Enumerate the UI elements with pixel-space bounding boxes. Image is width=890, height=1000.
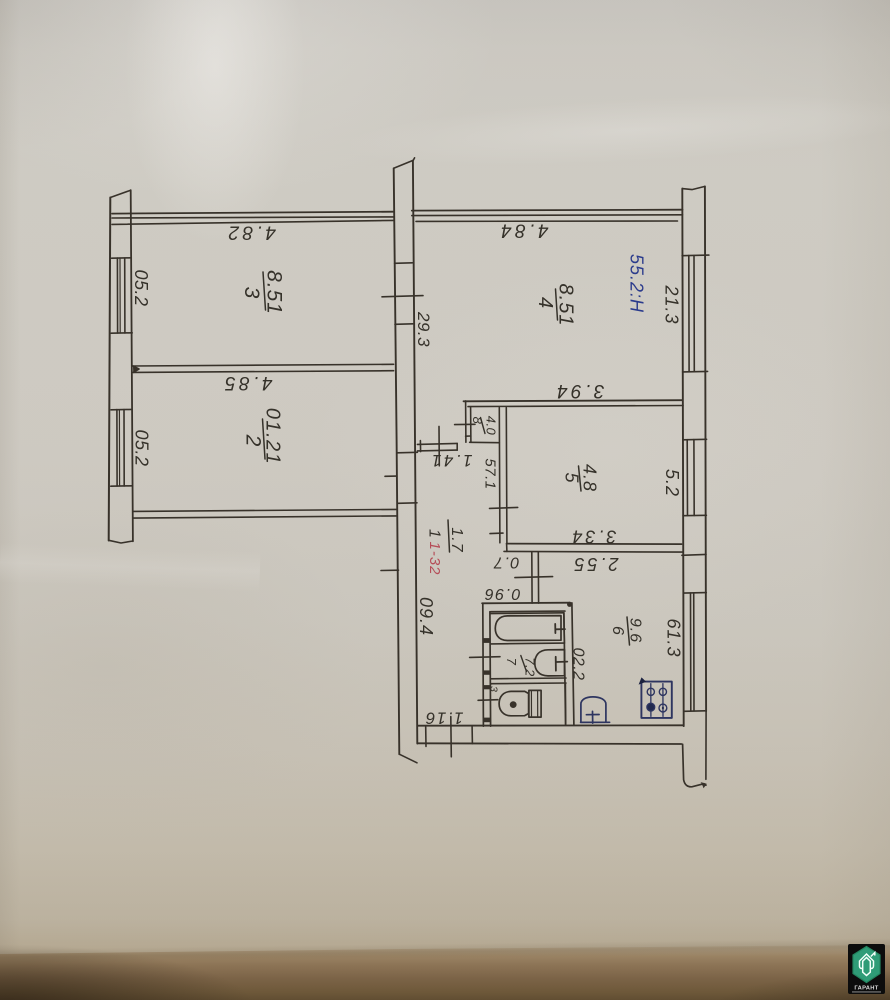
svg-text:2.55: 2.55 bbox=[571, 554, 619, 574]
svg-text:57.1: 57.1 bbox=[482, 458, 499, 489]
svg-text:4.84: 4.84 bbox=[498, 220, 549, 241]
svg-text:55.2:H: 55.2:H bbox=[627, 254, 647, 313]
svg-text:5: 5 bbox=[562, 472, 582, 483]
svg-text:3.94: 3.94 bbox=[554, 380, 605, 401]
svg-text:1-32: 1-32 bbox=[426, 541, 443, 575]
svg-text:4.8: 4.8 bbox=[580, 464, 600, 492]
svg-text:.3: .3 bbox=[488, 683, 500, 692]
svg-text:6: 6 bbox=[609, 626, 626, 636]
svg-text:05.2: 05.2 bbox=[131, 269, 151, 306]
svg-text:4.0: 4.0 bbox=[483, 416, 498, 436]
svg-text:3.34: 3.34 bbox=[569, 527, 616, 547]
svg-text:02.2: 02.2 bbox=[570, 647, 587, 680]
svg-text:9.6: 9.6 bbox=[627, 618, 644, 643]
svg-text:1.41: 1.41 bbox=[429, 451, 472, 470]
svg-text:29.3: 29.3 bbox=[414, 311, 433, 347]
svg-text:5.2: 5.2 bbox=[662, 469, 682, 497]
svg-text:09.4: 09.4 bbox=[416, 597, 436, 636]
svg-text:61.3: 61.3 bbox=[664, 618, 684, 657]
svg-text:4.85: 4.85 bbox=[222, 372, 273, 393]
svg-text:1.16: 1.16 bbox=[424, 708, 463, 727]
svg-text:1.7: 1.7 bbox=[448, 527, 465, 552]
svg-text:8.51: 8.51 bbox=[262, 270, 285, 315]
svg-text:7.2: 7.2 bbox=[522, 657, 537, 677]
svg-text:4.82: 4.82 bbox=[225, 222, 276, 243]
svg-text:7: 7 bbox=[504, 658, 519, 666]
svg-text:ГАРАНТ: ГАРАНТ bbox=[854, 986, 878, 992]
svg-text:3: 3 bbox=[240, 287, 263, 300]
svg-text:0.96: 0.96 bbox=[483, 585, 520, 602]
svg-text:4: 4 bbox=[534, 297, 556, 309]
svg-text:2: 2 bbox=[241, 434, 264, 448]
svg-text:1: 1 bbox=[426, 529, 443, 539]
svg-text:0.7: 0.7 bbox=[493, 554, 520, 571]
svg-text:01.21: 01.21 bbox=[261, 408, 283, 466]
svg-text:8.51: 8.51 bbox=[554, 284, 576, 327]
svg-text:21.3: 21.3 bbox=[662, 284, 682, 324]
svg-text:05.2: 05.2 bbox=[132, 429, 152, 466]
